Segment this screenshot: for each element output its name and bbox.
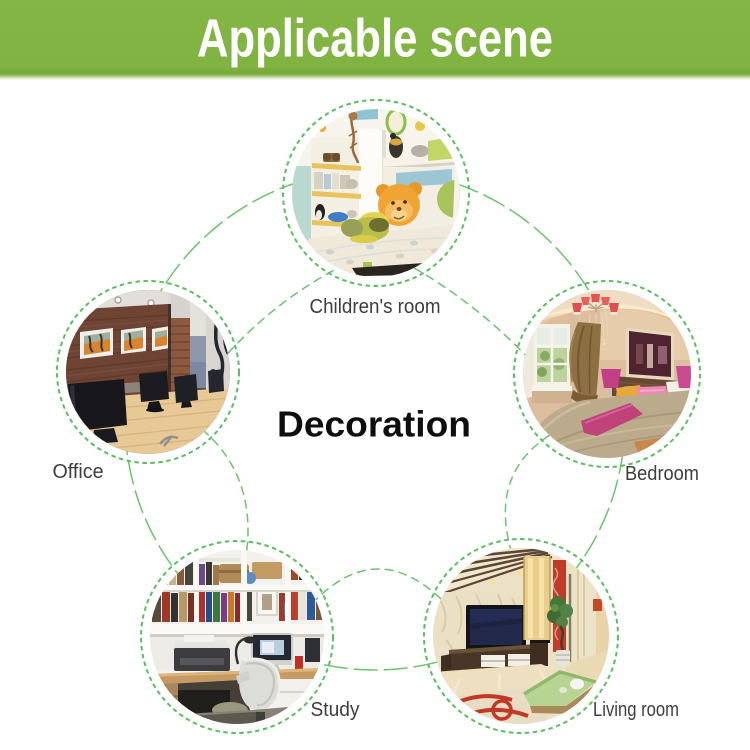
svg-text:Living room: Living room xyxy=(593,699,679,721)
svg-text:Children's room: Children's room xyxy=(310,296,441,318)
svg-text:Applicable scene: Applicable scene xyxy=(197,9,553,69)
svg-text:Study: Study xyxy=(311,699,360,721)
svg-text:Bedroom: Bedroom xyxy=(625,463,699,485)
svg-text:Office: Office xyxy=(53,461,104,483)
svg-text:Decoration: Decoration xyxy=(277,404,471,445)
